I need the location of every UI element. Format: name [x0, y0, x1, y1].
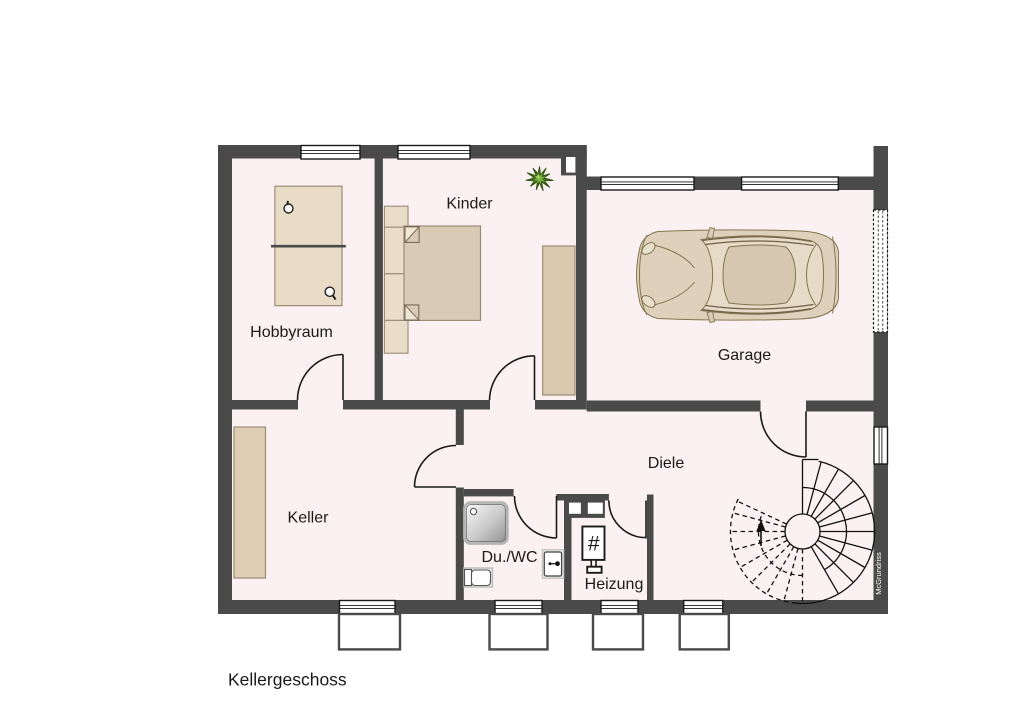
svg-text:McGrundriss: McGrundriss: [874, 552, 883, 595]
svg-text:#: #: [588, 533, 600, 556]
svg-text:Kellergeschoss: Kellergeschoss: [228, 670, 347, 690]
svg-text:Kinder: Kinder: [446, 196, 493, 213]
svg-text:Diele: Diele: [648, 455, 685, 472]
svg-text:Du./WC: Du./WC: [482, 549, 538, 566]
svg-text:Keller: Keller: [288, 510, 330, 527]
svg-text:Garage: Garage: [718, 347, 771, 364]
svg-text:Hobbyraum: Hobbyraum: [250, 324, 333, 341]
svg-text:Heizung: Heizung: [585, 576, 644, 593]
